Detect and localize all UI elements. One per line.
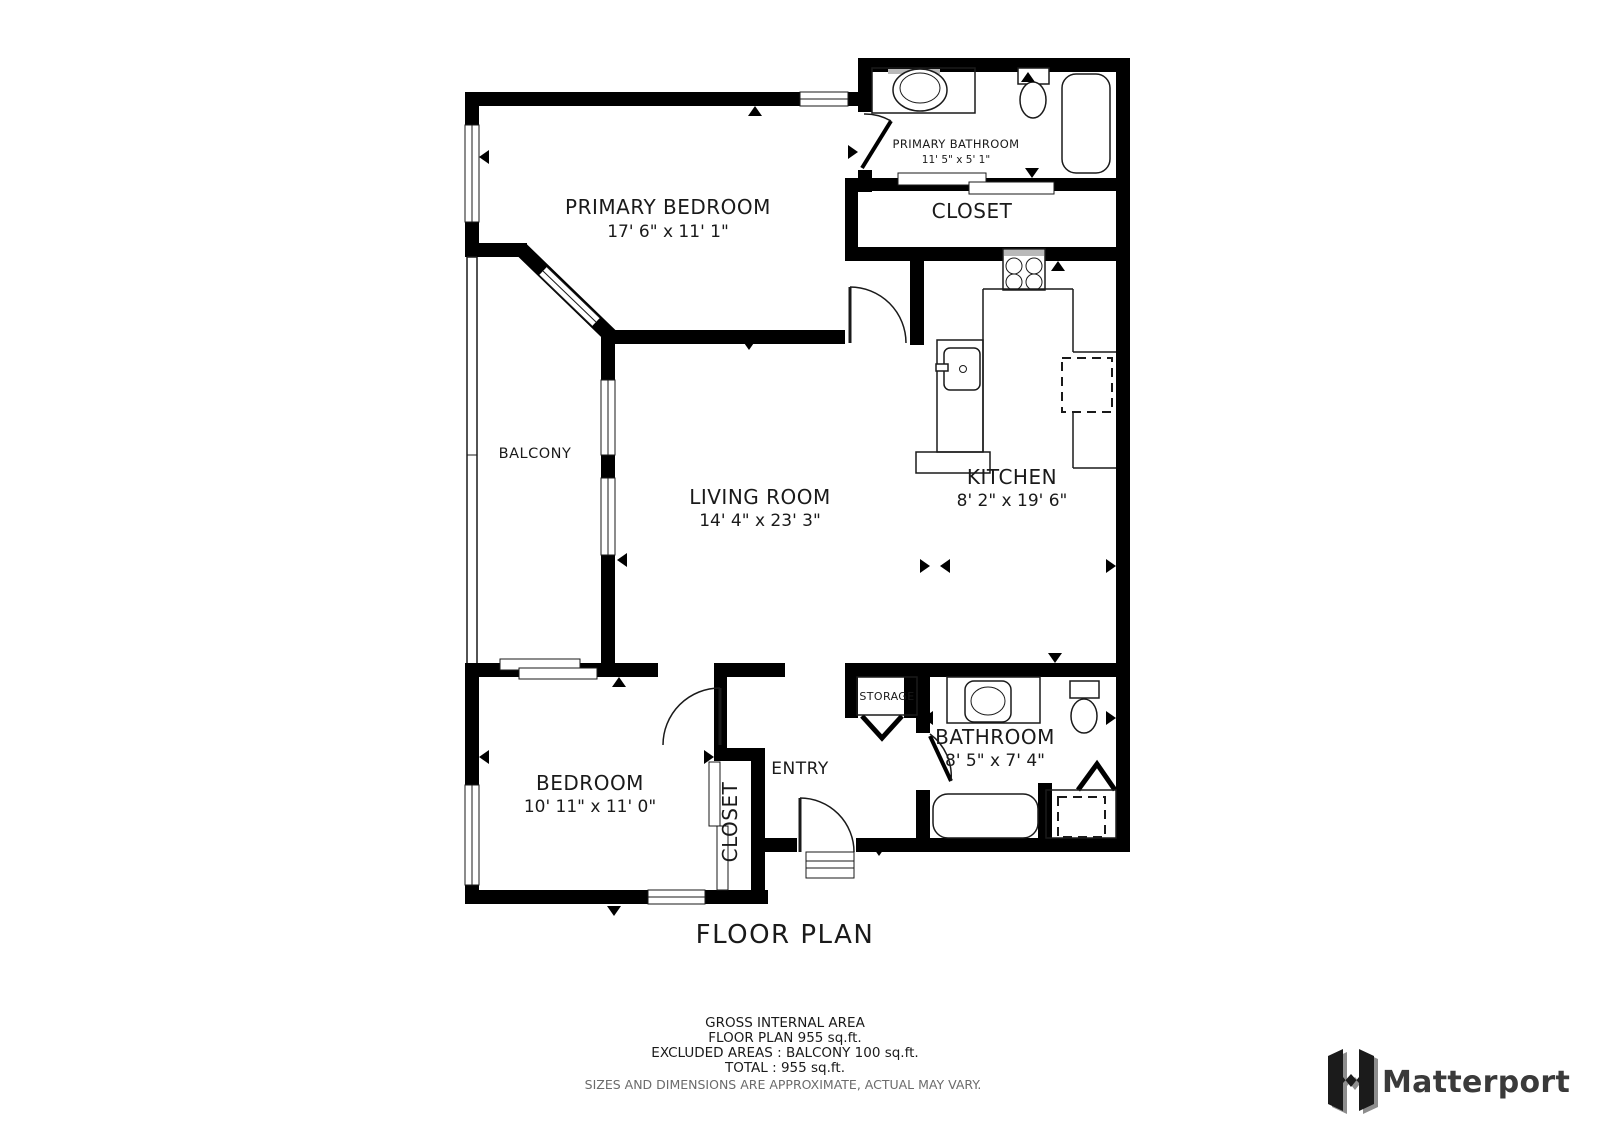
primary-bath-vanity-sink-icon xyxy=(872,68,975,113)
bathroom-toilet-icon xyxy=(1070,681,1099,733)
matterport-logo-icon-front xyxy=(1328,1049,1374,1111)
storage-label: STORAGE xyxy=(859,690,914,703)
matterport-logo: Matterport xyxy=(1328,1049,1570,1114)
bathroom-label: BATHROOM xyxy=(935,725,1055,749)
footer-excluded-areas: EXCLUDED AREAS : BALCONY 100 sq.ft. xyxy=(651,1045,918,1061)
primary-bath-toilet-icon xyxy=(1018,68,1049,118)
kitchen-label: KITCHEN xyxy=(967,465,1057,489)
entry-label: ENTRY xyxy=(771,759,829,779)
page-title: FLOOR PLAN xyxy=(696,920,875,950)
living-room-dims: 14' 4" x 23' 3" xyxy=(699,511,821,531)
refrigerator-icon xyxy=(1062,358,1112,412)
primary-bathroom-dims: 11' 5" x 5' 1" xyxy=(922,154,990,166)
bathroom-tub-icon xyxy=(933,794,1038,838)
closet-lower-label: CLOSET xyxy=(718,781,742,862)
titles: FLOOR PLAN GROSS INTERNAL AREA FLOOR PLA… xyxy=(585,920,982,1092)
kitchen-sink-icon xyxy=(936,348,980,390)
room-labels: PRIMARY BEDROOM 17' 6" x 11' 1" PRIMARY … xyxy=(499,137,1068,862)
floor-plan-drawing: PRIMARY BEDROOM 17' 6" x 11' 1" PRIMARY … xyxy=(0,0,1600,1130)
balcony-walls xyxy=(467,257,477,663)
footer-disclaimer: SIZES AND DIMENSIONS ARE APPROXIMATE, AC… xyxy=(585,1077,982,1092)
primary-bedroom-label: PRIMARY BEDROOM xyxy=(565,195,771,219)
matterport-logo-text: Matterport xyxy=(1382,1065,1570,1100)
floor-plan-page: PRIMARY BEDROOM 17' 6" x 11' 1" PRIMARY … xyxy=(0,0,1600,1130)
primary-bath-tub-icon xyxy=(1062,74,1110,173)
footer-floor-plan-area: FLOOR PLAN 955 sq.ft. xyxy=(708,1030,861,1046)
primary-bedroom-dims: 17' 6" x 11' 1" xyxy=(607,222,729,242)
kitchen-dims: 8' 2" x 19' 6" xyxy=(957,491,1068,511)
primary-bathroom-label: PRIMARY BATHROOM xyxy=(893,137,1020,151)
footer-gross-area: GROSS INTERNAL AREA xyxy=(705,1015,865,1031)
bedroom-label: BEDROOM xyxy=(536,771,644,795)
bedroom-dims: 10' 11" x 11' 0" xyxy=(524,797,656,817)
stove-icon xyxy=(1003,249,1045,290)
bathroom-vanity-sink-icon xyxy=(947,677,1040,723)
living-room-label: LIVING ROOM xyxy=(689,485,831,509)
bathroom-dims: 8' 5" x 7' 4" xyxy=(945,751,1045,771)
footer-total: TOTAL : 955 sq.ft. xyxy=(724,1060,845,1076)
washer-icon xyxy=(1046,790,1116,838)
balcony-label: BALCONY xyxy=(499,446,572,462)
closet-upper-label: CLOSET xyxy=(932,199,1013,223)
